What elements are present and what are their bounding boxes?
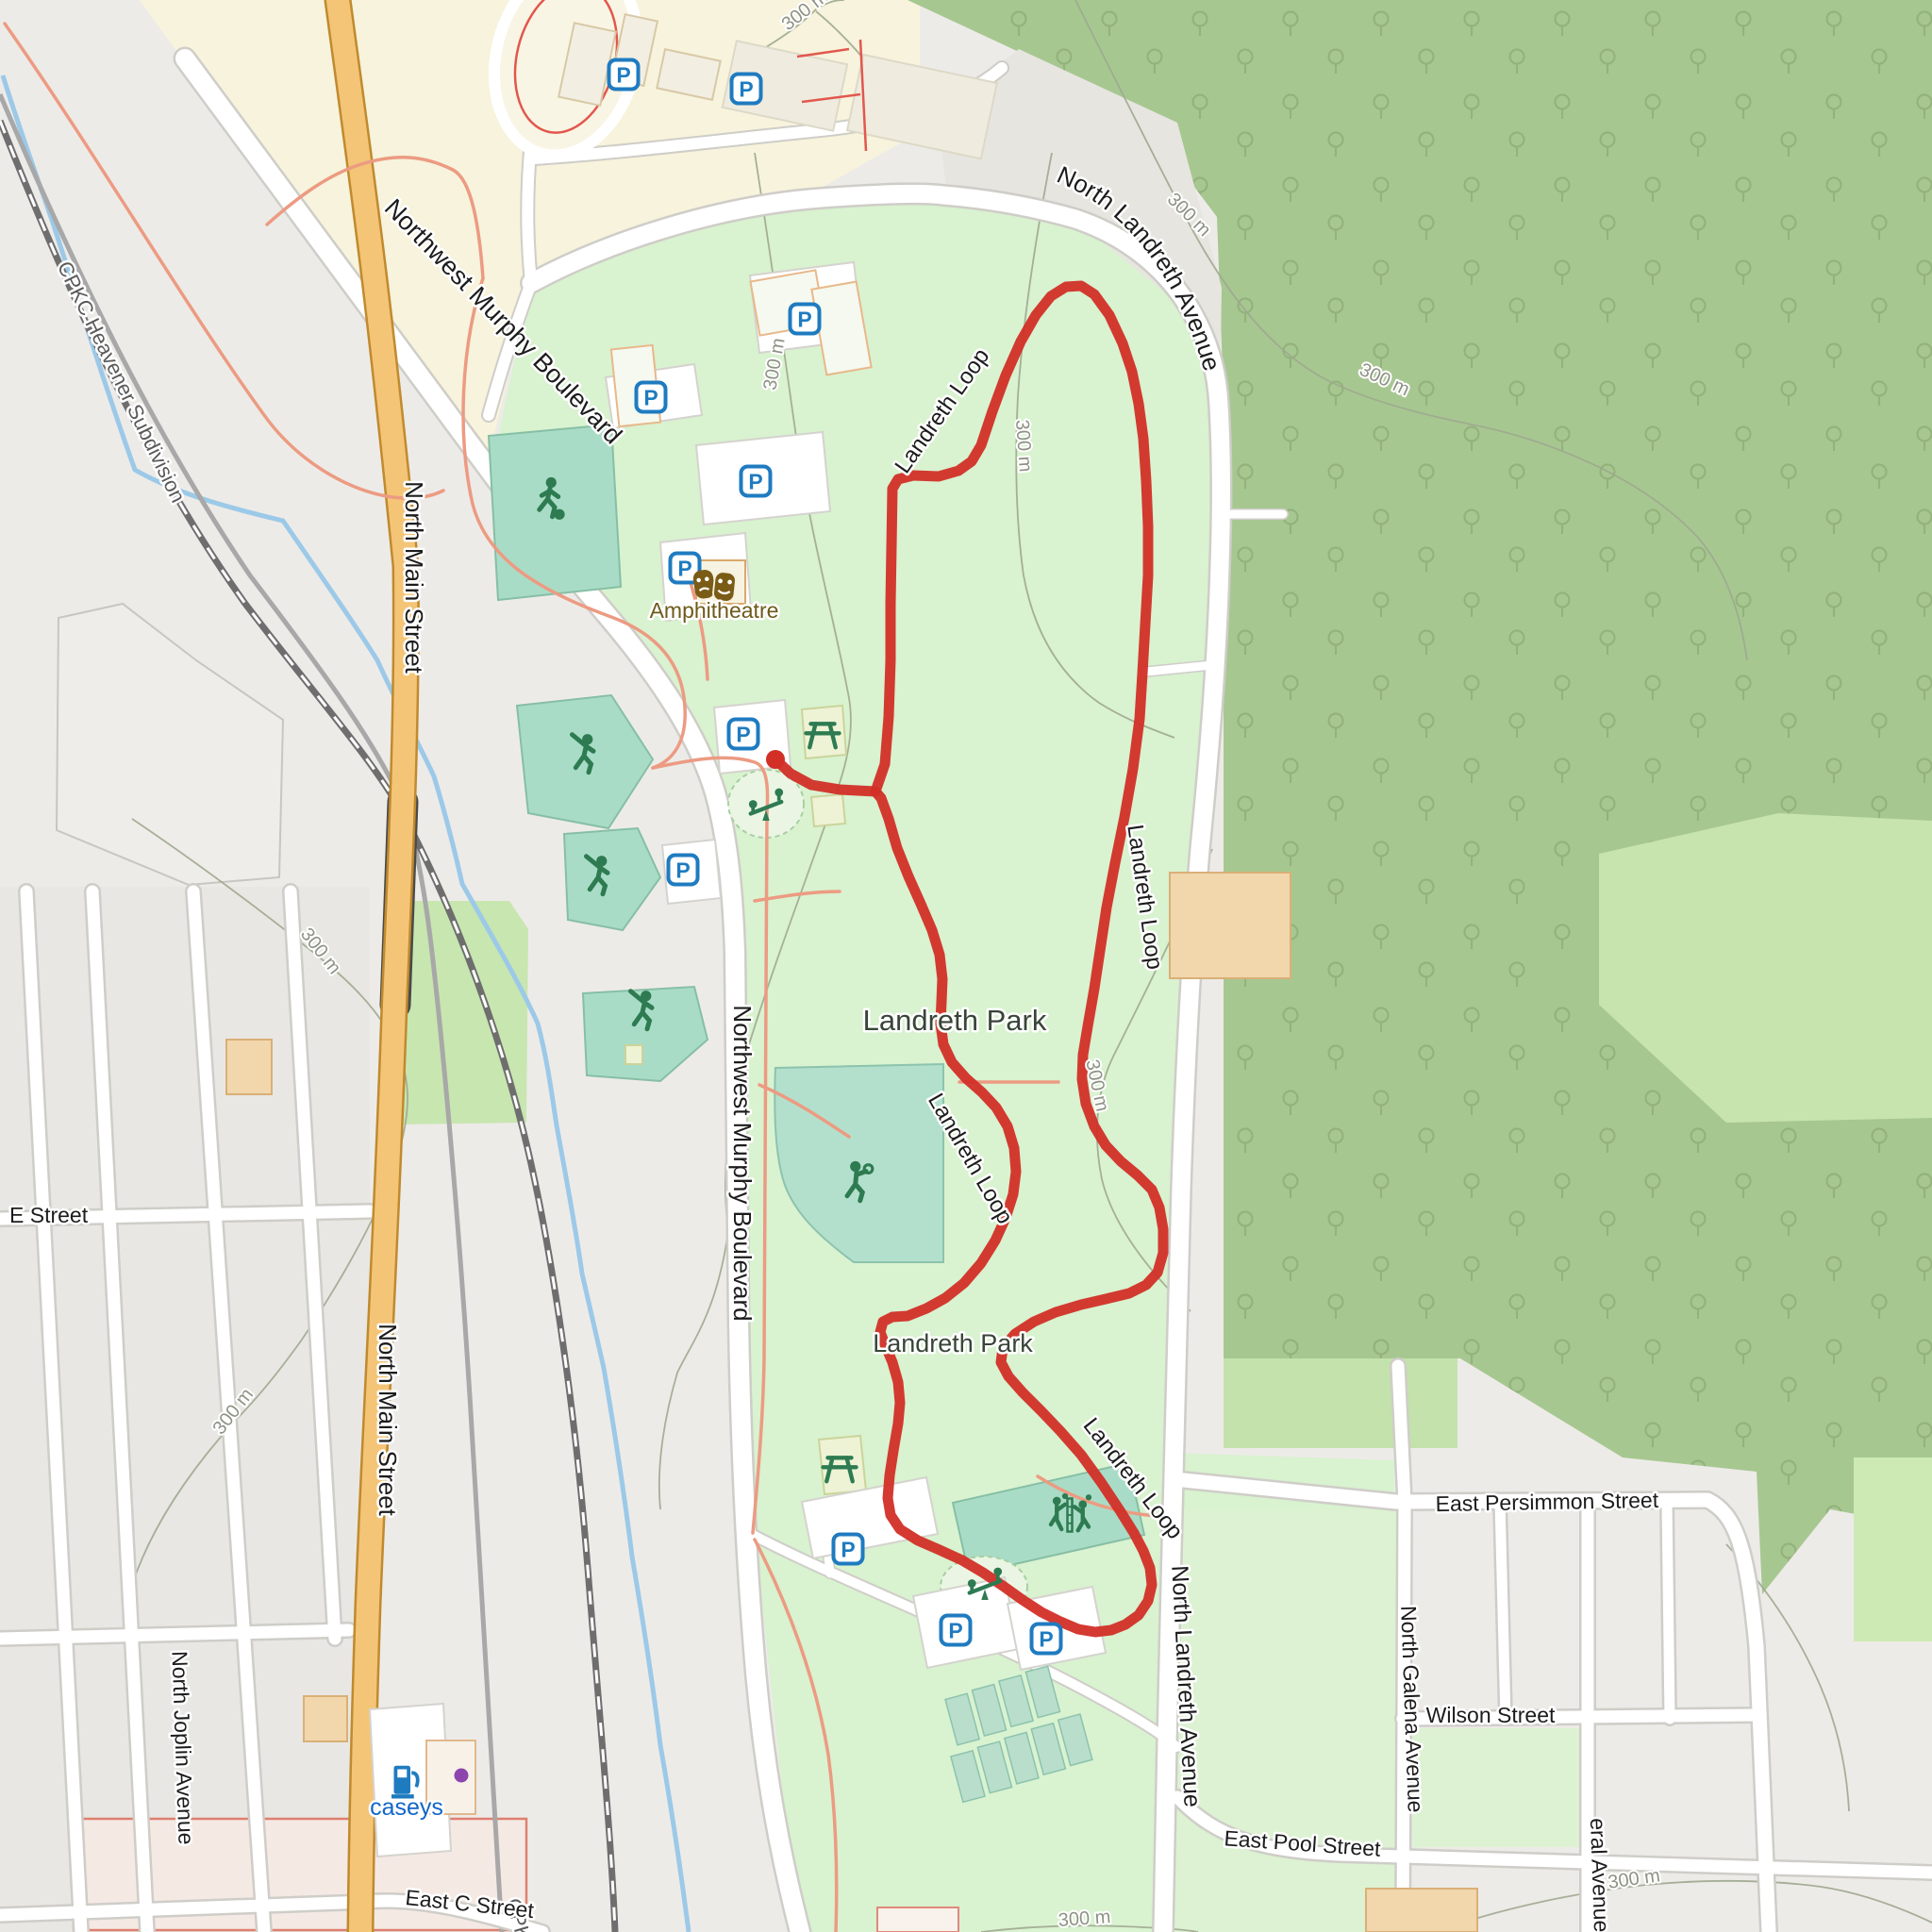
map-label-north-main-street-bottom: North Main Street <box>374 1324 402 1517</box>
green-corner <box>1854 1457 1932 1641</box>
poi-dot-icon <box>455 1769 469 1783</box>
green-avenue-bottom <box>1168 1509 1398 1932</box>
shelter-1 <box>811 794 845 826</box>
picnic-area-2 <box>819 1436 866 1494</box>
shelter-2 <box>625 1045 642 1064</box>
map-canvas[interactable]: P <box>0 0 1932 1932</box>
parking-icon <box>729 720 758 749</box>
parking-icon <box>609 60 639 90</box>
parking-icon <box>834 1535 863 1564</box>
parking-icon <box>791 305 820 334</box>
route-start-dot <box>766 750 785 769</box>
map-svg: P <box>0 0 1932 1932</box>
parking-icon <box>732 75 761 104</box>
map-label-landreth-park-2: Landreth Park <box>873 1329 1033 1357</box>
map-label-wilson-street: Wilson Street <box>1426 1703 1556 1727</box>
parking-icon <box>741 467 771 496</box>
map-label-east-persimmon-street: East Persimmon Street <box>1435 1488 1658 1516</box>
parking-icon <box>669 856 698 885</box>
map-label-contour-300m-10: 300 m <box>1058 1907 1111 1931</box>
map-label-nw-murphy-blvd-vertical: Northwest Murphy Boulevard <box>728 1005 757 1321</box>
map-label-contour-300m-5: 300 m <box>1011 419 1036 473</box>
parking-icon <box>637 383 666 412</box>
green-block-wilson <box>1412 1728 1580 1847</box>
parking-icon <box>941 1616 971 1645</box>
map-label-north-main-street-top: North Main Street <box>400 481 428 675</box>
map-label-landreth-park-1: Landreth Park <box>863 1004 1047 1037</box>
parking-icon <box>1032 1624 1061 1654</box>
map-label-caseys: caseys <box>370 1794 443 1821</box>
map-label-amphitheatre: Amphitheatre <box>650 598 779 623</box>
map-label-e-street: E Street <box>9 1203 89 1227</box>
forest-light-patch <box>1224 1358 1457 1448</box>
